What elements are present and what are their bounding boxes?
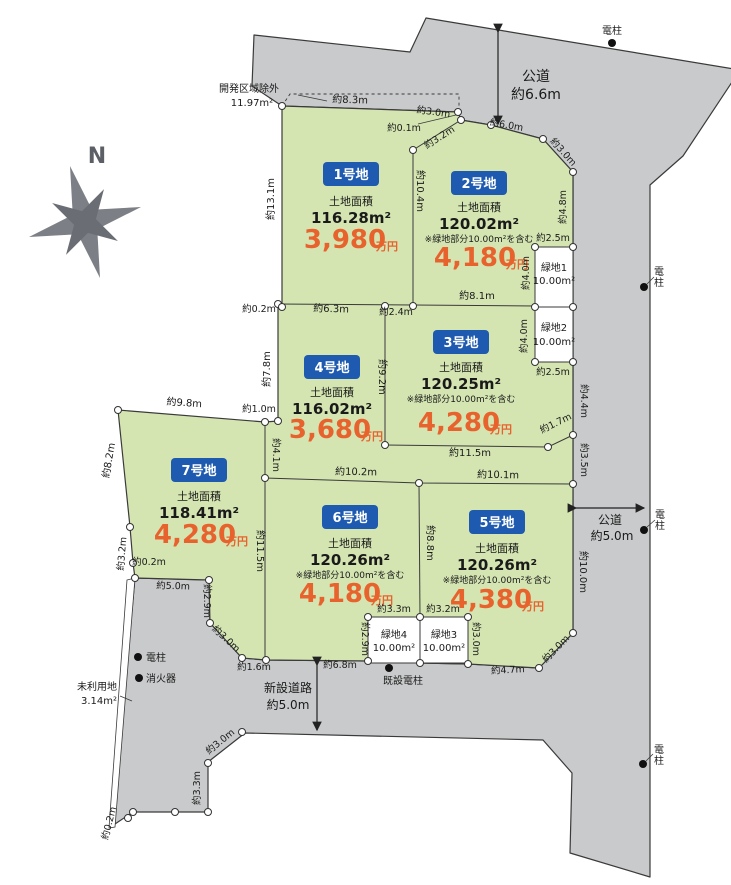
pole-label-right3b: 柱 (654, 754, 664, 767)
dim-68: 約6.8m (323, 659, 357, 671)
pole-label-left: 電柱 (146, 651, 166, 664)
pole-label-right1a: 電 (654, 266, 664, 278)
dim-10: 約1.0m (242, 403, 276, 415)
road-new-width: 約5.0m (267, 697, 310, 712)
dim-notch-29: 約2.9m (201, 584, 213, 618)
extinguisher-label: 消火器 (146, 672, 176, 685)
pole-dot-top (608, 39, 616, 47)
lot-3-price-unit: 万円 (489, 423, 512, 436)
dim-g4-33: 約3.3m (377, 603, 411, 615)
dim-lot7-98: 約9.8m (166, 395, 202, 410)
dim-lot6-115: 約11.5m (254, 530, 267, 572)
pole-label-top: 電柱 (602, 24, 622, 37)
compass-icon (14, 151, 156, 293)
lot-3-price: 4,280 (418, 408, 500, 438)
dim-road-50: 約5.0m (156, 579, 190, 592)
lot-7-price-unit: 万円 (225, 535, 248, 548)
dim-g1-40: 約4.0m (520, 256, 532, 290)
green-space-1-label: 緑地1 (541, 261, 567, 274)
lot-7-area-title: 土地面積 (177, 489, 221, 503)
dim-top-83: 約8.3m (332, 92, 368, 106)
dim-lot1-131: 約13.1m (264, 178, 277, 220)
green-space-4-area: 10.00m² (373, 643, 415, 654)
dim-lot2-81: 約8.1m (459, 289, 495, 302)
dim-lot6-102: 約10.2m (335, 465, 377, 479)
road-top-name: 公道 (522, 69, 550, 85)
dim-lot3-92: 約9.2m (376, 359, 389, 395)
site-plan: N 公道 約6.6m 公道 約5.0m 新設道路 約5.0m 開発区域除外 11… (0, 0, 731, 885)
extinguisher-dot (135, 674, 143, 682)
dim-g3-30: 約3.0m (470, 622, 482, 656)
pole-dot-left (134, 653, 142, 661)
lot-4-price: 3,680 (289, 415, 371, 445)
dim-lot7-32: 約3.2m (115, 536, 130, 571)
lot-3-area-title: 土地面積 (439, 360, 483, 374)
lot-2-area: 120.02m² (439, 215, 519, 233)
unused-land-label: 未利用地 (77, 680, 117, 693)
green-space-3-area: 10.00m² (423, 643, 465, 654)
dim-top-01: 約0.1m (387, 122, 421, 134)
existing-pole-dot (385, 664, 393, 672)
exclusion-label: 開発区域除外 (219, 82, 279, 95)
dim-lot4-63: 約6.3m (313, 301, 349, 315)
lot-2-price: 4,180 (434, 243, 516, 273)
road-new-name: 新設道路 (264, 680, 312, 695)
lot-1-price: 3,980 (304, 225, 386, 255)
pole-dot-right2 (640, 526, 648, 534)
green-space-2-label: 緑地2 (541, 321, 567, 334)
lot-2-label: 2号地 (461, 176, 496, 192)
lot-6-price: 4,180 (299, 579, 381, 609)
dim-g2-25: 約2.5m (536, 366, 570, 378)
road-right-width: 約5.0m (591, 528, 634, 543)
lot-4-area-title: 土地面積 (310, 385, 354, 399)
road-right-name: 公道 (598, 513, 622, 527)
dim-88: 約8.8m (424, 525, 437, 561)
dim-lot2-48: 約4.8m (557, 190, 569, 224)
lot-6-area: 120.26m² (310, 551, 390, 569)
dim-02-top: 約0.2m (242, 303, 276, 315)
green-space-1-area: 10.00m² (533, 276, 575, 287)
lot-7-label: 7号地 (181, 463, 216, 479)
existing-pole-label: 既設電柱 (383, 674, 423, 687)
dim-bl-33: 約3.3m (191, 771, 203, 805)
pole-label-right2b: 柱 (655, 519, 665, 532)
dim-24: 約2.4m (379, 306, 413, 318)
lot-5-label: 5号地 (479, 515, 514, 531)
dim-lot5-100: 約10.0m (577, 551, 590, 593)
unused-land-area: 3.14m² (81, 696, 117, 707)
compass-north-label: N (88, 144, 106, 169)
dim-35: 約3.5m (578, 443, 590, 477)
green-space-2-area: 10.00m² (533, 337, 575, 348)
exclusion-area: 11.97m² (231, 98, 273, 109)
lot-3-note: ※緑地部分10.00m²を含む (407, 393, 516, 405)
pole-dot-right1 (640, 283, 648, 291)
dim-g1-25: 約2.5m (536, 232, 570, 244)
lot-4-price-unit: 万円 (360, 430, 383, 443)
dim-41: 約4.1m (270, 438, 282, 472)
green-space-2-box (535, 307, 573, 362)
pole-dot-right3 (639, 760, 647, 768)
dim-44: 約4.4m (578, 384, 590, 418)
lot-6-label: 6号地 (332, 510, 367, 526)
lot-6-area-title: 土地面積 (328, 536, 372, 550)
pole-label-right1b: 柱 (654, 276, 664, 289)
lot-3-label: 3号地 (443, 335, 478, 351)
dim-lot1-104: 約10.4m (414, 170, 427, 212)
lot-7-price: 4,280 (154, 520, 236, 550)
dim-g4-29: 約2.9m (359, 622, 371, 656)
lot-5-price: 4,380 (450, 585, 532, 615)
lot-5-area: 120.26m² (457, 556, 537, 574)
dim-02-mid: 約0.2m (132, 556, 166, 568)
lot-4-label: 4号地 (314, 360, 349, 376)
dim-16: 約1.6m (237, 661, 271, 673)
dim-lot7-82: 約8.2m (99, 442, 118, 479)
dim-lot4-78: 約7.8m (260, 351, 273, 387)
pole-label-right2a: 電 (655, 509, 665, 521)
pole-label-right3a: 電 (654, 744, 664, 756)
dim-lot5-101: 約10.1m (477, 468, 519, 482)
green-space-4-label: 緑地4 (381, 628, 407, 641)
dim-lot3-115: 約11.5m (449, 446, 491, 459)
lot-3-area: 120.25m² (421, 375, 501, 393)
lot-1-area-title: 土地面積 (329, 194, 373, 208)
lot-1-label: 1号地 (333, 167, 368, 183)
dim-g2-40: 約4.0m (518, 319, 530, 353)
dim-47: 約4.7m (491, 663, 525, 677)
lot-5-area-title: 土地面積 (475, 541, 519, 555)
site-plan-svg: N 公道 約6.6m 公道 約5.0m 新設道路 約5.0m 開発区域除外 11… (0, 0, 731, 885)
lot-5-price-unit: 万円 (521, 600, 544, 613)
road-top-width: 約6.6m (511, 87, 561, 103)
dim-g3-32: 約3.2m (426, 603, 460, 615)
lot-1-price-unit: 万円 (375, 240, 398, 253)
green-space-3-label: 緑地3 (431, 628, 457, 641)
lot-2-area-title: 土地面積 (457, 200, 501, 214)
